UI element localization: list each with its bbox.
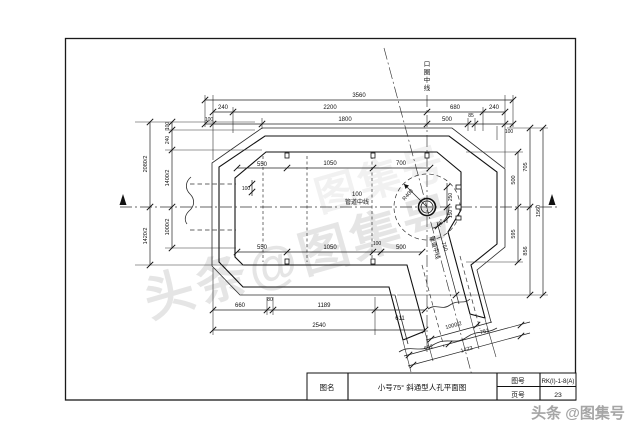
dim-top-total: 3560 xyxy=(352,93,366,99)
ring-centerline-char-2: 圈 xyxy=(424,68,431,76)
ring-centerline-char-1: 口 xyxy=(424,60,431,68)
page-border xyxy=(66,39,576,401)
dim-in-left-100: 100 xyxy=(242,186,251,192)
dim-top-240-r: 240 xyxy=(489,105,500,111)
titleblock-name-label: 图名 xyxy=(320,382,335,392)
dim-left-1420-2: 1420/2 xyxy=(143,228,149,245)
dim-in-top-550: 550 xyxy=(257,162,268,168)
ring-centerline-char-3: 中 xyxy=(424,75,431,84)
dim-sk-761: 761 xyxy=(480,328,490,336)
dim-bot-1189: 1189 xyxy=(318,303,332,309)
titleblock-no-value: RK(I)-1-8(A) xyxy=(542,379,575,385)
dim-sk-1423: 1423 xyxy=(460,346,473,355)
engineering-drawing: 头条@图集号 图集号 xyxy=(0,0,640,445)
channel-pipe-break xyxy=(428,299,470,309)
dim-sk-662: 662 xyxy=(424,344,434,352)
dim-top-100-l: 100 xyxy=(205,117,214,123)
dim-top-100-r: 100 xyxy=(505,129,514,135)
label-ring-centerline: 口 圈 中 线 xyxy=(424,60,431,92)
dim-in-bot-100: 100 xyxy=(373,241,382,247)
dim-wall-150: 150 xyxy=(448,210,454,219)
dim-in-top-700: 700 xyxy=(396,161,407,167)
titleblock-no-label: 图号 xyxy=(511,377,525,385)
dim-bot-2540: 2540 xyxy=(312,323,326,329)
title-block: 图名 小号75° 斜通型人孔平面图 图号 RK(I)-1-8(A) 页号 23 xyxy=(307,373,576,400)
dim-left-240: 240 xyxy=(165,136,171,145)
watermark-diagonal: 头条@图集号 图集号 xyxy=(138,138,464,328)
dim-left-1000-2: 1000/2 xyxy=(165,219,171,236)
titleblock-page-value: 23 xyxy=(554,392,562,399)
titleblock-page-label: 页号 xyxy=(511,391,525,399)
dim-in-bot-1050: 1050 xyxy=(323,245,337,251)
dim-top-85: 85 xyxy=(468,113,474,119)
ring-centerline-char-4: 线 xyxy=(424,83,431,92)
dim-top-680: 680 xyxy=(450,105,461,111)
dim-top-2200: 2200 xyxy=(323,105,337,111)
dim-wall-250: 250 xyxy=(448,193,454,202)
dim-left-100: 100 xyxy=(165,122,171,131)
label-pipe-100: 100 xyxy=(352,192,363,198)
dim-bot-660: 660 xyxy=(235,303,246,309)
dim-in-bot-550: 550 xyxy=(257,245,268,251)
dim-bot-611: 611 xyxy=(395,316,405,322)
label-pipe-centerline: 管道中线 xyxy=(345,198,369,206)
flow-arrow-left xyxy=(120,194,127,205)
watermark-footer: 头条 @图集号 xyxy=(531,404,625,422)
dim-in-bot-500: 500 xyxy=(396,245,407,251)
dim-in-top-1050: 1050 xyxy=(323,161,337,167)
dim-top-1800: 1800 xyxy=(338,117,352,123)
dim-right-1560: 1560 xyxy=(536,205,542,217)
dim-top-500: 500 xyxy=(442,117,453,123)
scanned-drawing-page: 头条@图集号 图集号 xyxy=(0,0,640,445)
dim-left-1400-2: 1400/2 xyxy=(165,170,171,187)
dim-left-2080-2: 2080/2 xyxy=(143,156,149,173)
dim-diag-750: 750 xyxy=(440,241,448,252)
titleblock-drawing-title: 小号75° 斜通型人孔平面图 xyxy=(378,382,466,392)
dim-right-856: 856 xyxy=(523,246,529,255)
dim-bot-80: 80 xyxy=(267,297,273,303)
dim-right-705: 705 xyxy=(523,162,529,171)
flow-arrow-right xyxy=(549,194,556,205)
dim-top-240-l: 240 xyxy=(218,105,229,111)
dim-right-500: 500 xyxy=(511,175,517,184)
dim-right-595: 595 xyxy=(511,229,517,238)
